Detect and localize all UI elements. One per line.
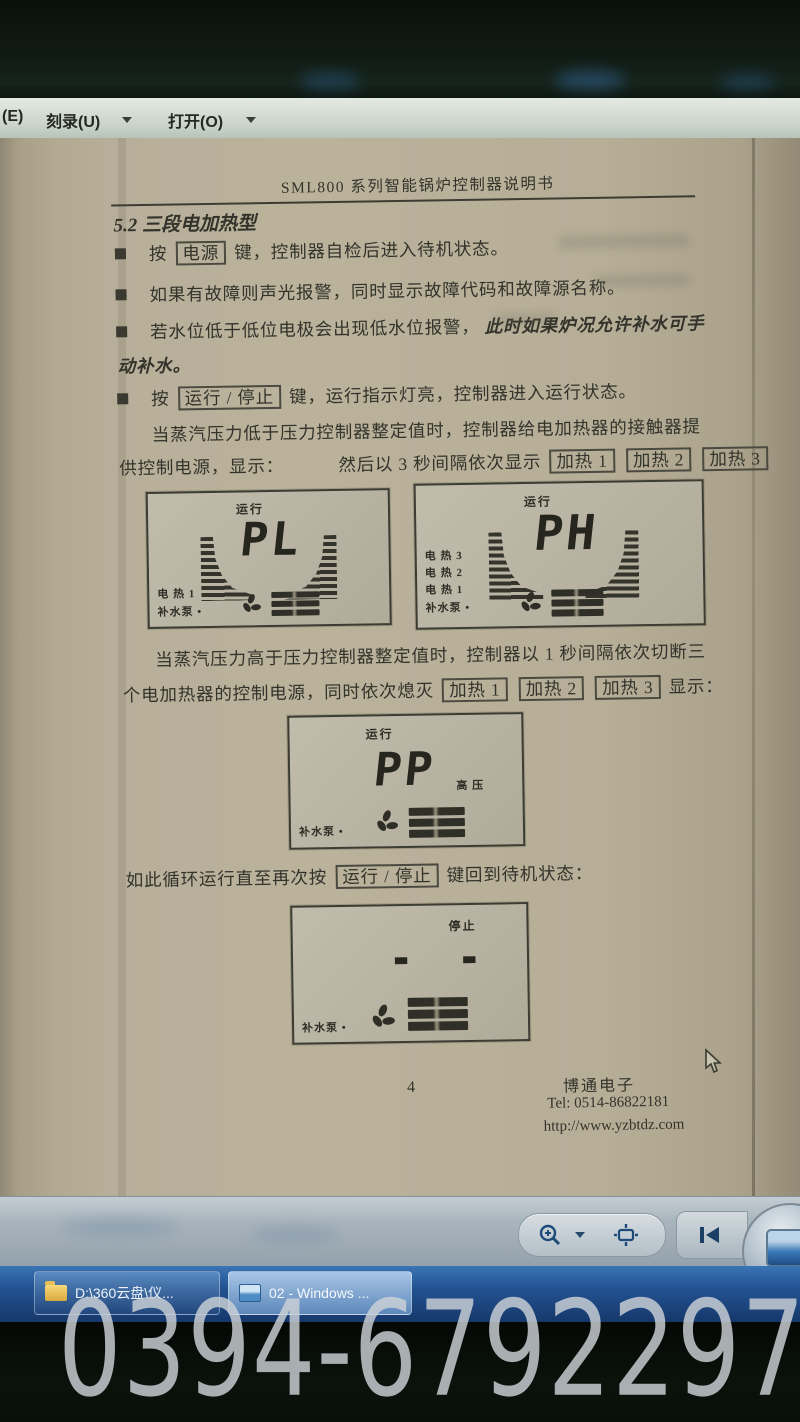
paragraph-1-line-1: 当蒸汽压力低于压力控制器整定值时，控制器给电加热器的接触器提 — [152, 413, 701, 447]
bullet-3: 若水位低于低位电极会出现低水位报警， 此时如果炉况允许补水可手 — [150, 310, 705, 344]
paragraph-2-line-1: 当蒸汽压力高于压力控制器整定值时，控制器以 1 秒间隔依次切断三 — [155, 638, 706, 672]
loop-line-post: 键回到待机状态： — [446, 863, 593, 885]
heat1-key-label: 加热 1 — [442, 677, 508, 702]
paragraph-2-line-2a: 个电加热器的控制电源，同时依次熄灭 — [123, 680, 434, 705]
paragraph-1-line-2a: 供控制电源，显示： — [119, 456, 284, 479]
runstop-key-label: 运行 / 停止 — [335, 863, 439, 889]
bullet-3-pre: 若水位低于低位电极会出现低水位报警， — [150, 317, 480, 342]
level-bars-icon — [408, 997, 469, 1031]
document-page: SML800 系列智能锅炉控制器说明书 5.2 三段电加热型 按 电源 键，控制… — [0, 138, 800, 1196]
heat2-key-label: 加热 2 — [626, 447, 692, 472]
actual-size-icon[interactable] — [613, 1222, 639, 1248]
screen-reflection — [300, 72, 360, 90]
level-bars-icon — [271, 591, 319, 616]
fan-icon — [239, 592, 263, 616]
bullet-4-post: 键，运行指示灯亮，控制器进入运行状态。 — [289, 381, 637, 406]
viewer-menubar: (E) 刻录(U) 打开(O) — [0, 98, 800, 140]
footer-url: http://www.yzbtdz.com — [544, 1117, 685, 1136]
toolbar-reflection — [60, 1219, 180, 1235]
bullet-marker — [115, 289, 126, 300]
lcd-value: - - — [389, 930, 492, 987]
lcd-value: PH — [531, 505, 601, 562]
photo-viewer-canvas[interactable]: SML800 系列智能锅炉控制器说明书 5.2 三段电加热型 按 电源 键，控制… — [0, 138, 800, 1196]
loop-line-pre: 如此循环运行直至再次按 — [126, 867, 328, 890]
bullet-4-pre: 按 — [151, 389, 170, 409]
bullet-marker — [116, 326, 127, 337]
loop-line: 如此循环运行直至再次按 运行 / 停止 键回到待机状态： — [126, 860, 594, 892]
paragraph-1-line-2: 供控制电源，显示： 然后以 3 秒间隔依次显示 加热 1 加热 2 加热 3 — [119, 445, 771, 480]
ink-bleed-through — [559, 233, 689, 249]
lcd-label-heater1: 电 热 1 — [157, 585, 195, 602]
fan-icon — [517, 590, 543, 616]
chevron-down-icon[interactable] — [246, 117, 256, 123]
footer-telephone: Tel: 0514-86822181 — [547, 1094, 669, 1113]
lcd-value: PL — [238, 511, 305, 566]
zoom-options-caret-icon[interactable] — [575, 1232, 585, 1238]
paragraph-2-line-2b: 显示： — [668, 676, 723, 697]
fan-icon — [373, 808, 401, 836]
bullet-marker — [115, 248, 126, 259]
monitor-bezel-top — [0, 0, 800, 98]
zoom-in-icon[interactable] — [537, 1222, 563, 1248]
nav-button-group — [676, 1211, 748, 1259]
lcd-value: PP — [371, 741, 438, 796]
bullet-2: 如果有故障则声光报警，同时显示故障代码和故障源名称。 — [149, 274, 625, 306]
zoom-control-group — [518, 1213, 666, 1257]
bullet-4: 按 运行 / 停止 键，运行指示灯亮，控制器进入运行状态。 — [151, 378, 637, 411]
bullet-marker — [117, 393, 128, 404]
previous-image-icon[interactable] — [697, 1223, 723, 1247]
doc-header-title: SML800 系列智能锅炉控制器说明书 — [281, 172, 555, 198]
lcd-label-heater3: 电 热 3 — [425, 547, 463, 564]
bullet-1-pre: 按 — [149, 244, 168, 264]
heat2-key-label: 加热 2 — [518, 676, 584, 701]
paragraph-1-line-2b: 然后以 3 秒间隔依次显示 — [338, 452, 541, 475]
footer-company: 博通电子 — [563, 1071, 635, 1096]
screen-reflection — [555, 70, 625, 90]
fan-icon — [368, 1002, 398, 1032]
lcd-label-heater2: 电 热 2 — [425, 564, 463, 581]
lcd-status-label: 运行 — [365, 725, 393, 742]
bullet-1: 按 电源 键，控制器自检后进入待机状态。 — [149, 235, 509, 266]
chevron-down-icon[interactable] — [122, 117, 132, 123]
menu-item-open[interactable]: 打开(O) — [168, 108, 223, 132]
lcd-display-ph: 运行 PH 电 热 3 电 热 2 电 热 1 补水泵 • — [414, 479, 706, 630]
lcd-label-highpressure: 高 压 — [456, 777, 484, 793]
lcd-label-feedpump: 补水泵 • — [425, 599, 470, 616]
lcd-label-feedpump: 补水泵 • — [302, 1019, 347, 1036]
lcd-label-feedpump: 补水泵 • — [157, 603, 202, 620]
watermark-phone-number: 0394-6792297 — [58, 1272, 800, 1422]
ink-bleed-through — [495, 313, 555, 326]
paragraph-2-line-2: 个电加热器的控制电源，同时依次熄灭 加热 1 加热 2 加热 3 显示： — [123, 673, 724, 707]
lcd-display-pl: 运行 PL 电 热 1 补水泵 • — [146, 488, 392, 629]
runstop-key-label: 运行 / 停止 — [178, 385, 282, 411]
mouse-cursor — [703, 1048, 725, 1076]
header-rule — [111, 195, 695, 206]
menu-item-e[interactable]: (E) — [2, 108, 23, 126]
heat1-key-label: 加热 1 — [549, 449, 615, 474]
screen-reflection — [720, 74, 775, 90]
bullet-1-post: 键，控制器自检后进入待机状态。 — [234, 238, 509, 262]
bullet-3-continued: 动补水。 — [117, 352, 191, 378]
heat3-key-label: 加热 3 — [595, 675, 661, 700]
screen-photo: (E) 刻录(U) 打开(O) SML800 系列智能锅炉控制器说明书 5.2 … — [0, 0, 800, 1422]
page-number: 4 — [407, 1079, 415, 1097]
level-bars-icon — [409, 807, 465, 838]
toolbar-reflection — [250, 1227, 340, 1241]
lcd-display-standby: 停止 - - 补水泵 • — [290, 902, 530, 1045]
ink-bleed-through — [594, 273, 689, 287]
lcd-label-heater1: 电 热 1 — [425, 581, 463, 598]
menu-item-burn[interactable]: 刻录(U) — [46, 108, 100, 132]
section-title: 5.2 三段电加热型 — [113, 208, 256, 237]
power-key-label: 电源 — [175, 241, 226, 266]
slideshow-picture-icon — [766, 1229, 800, 1267]
photo-viewer-toolbar — [0, 1196, 800, 1267]
heat3-key-label: 加热 3 — [702, 446, 768, 471]
lcd-display-pp: 运行 PP 高 压 补水泵 • — [287, 712, 525, 850]
lcd-label-feedpump: 补水泵 • — [299, 823, 344, 840]
level-bars-icon — [551, 589, 603, 617]
